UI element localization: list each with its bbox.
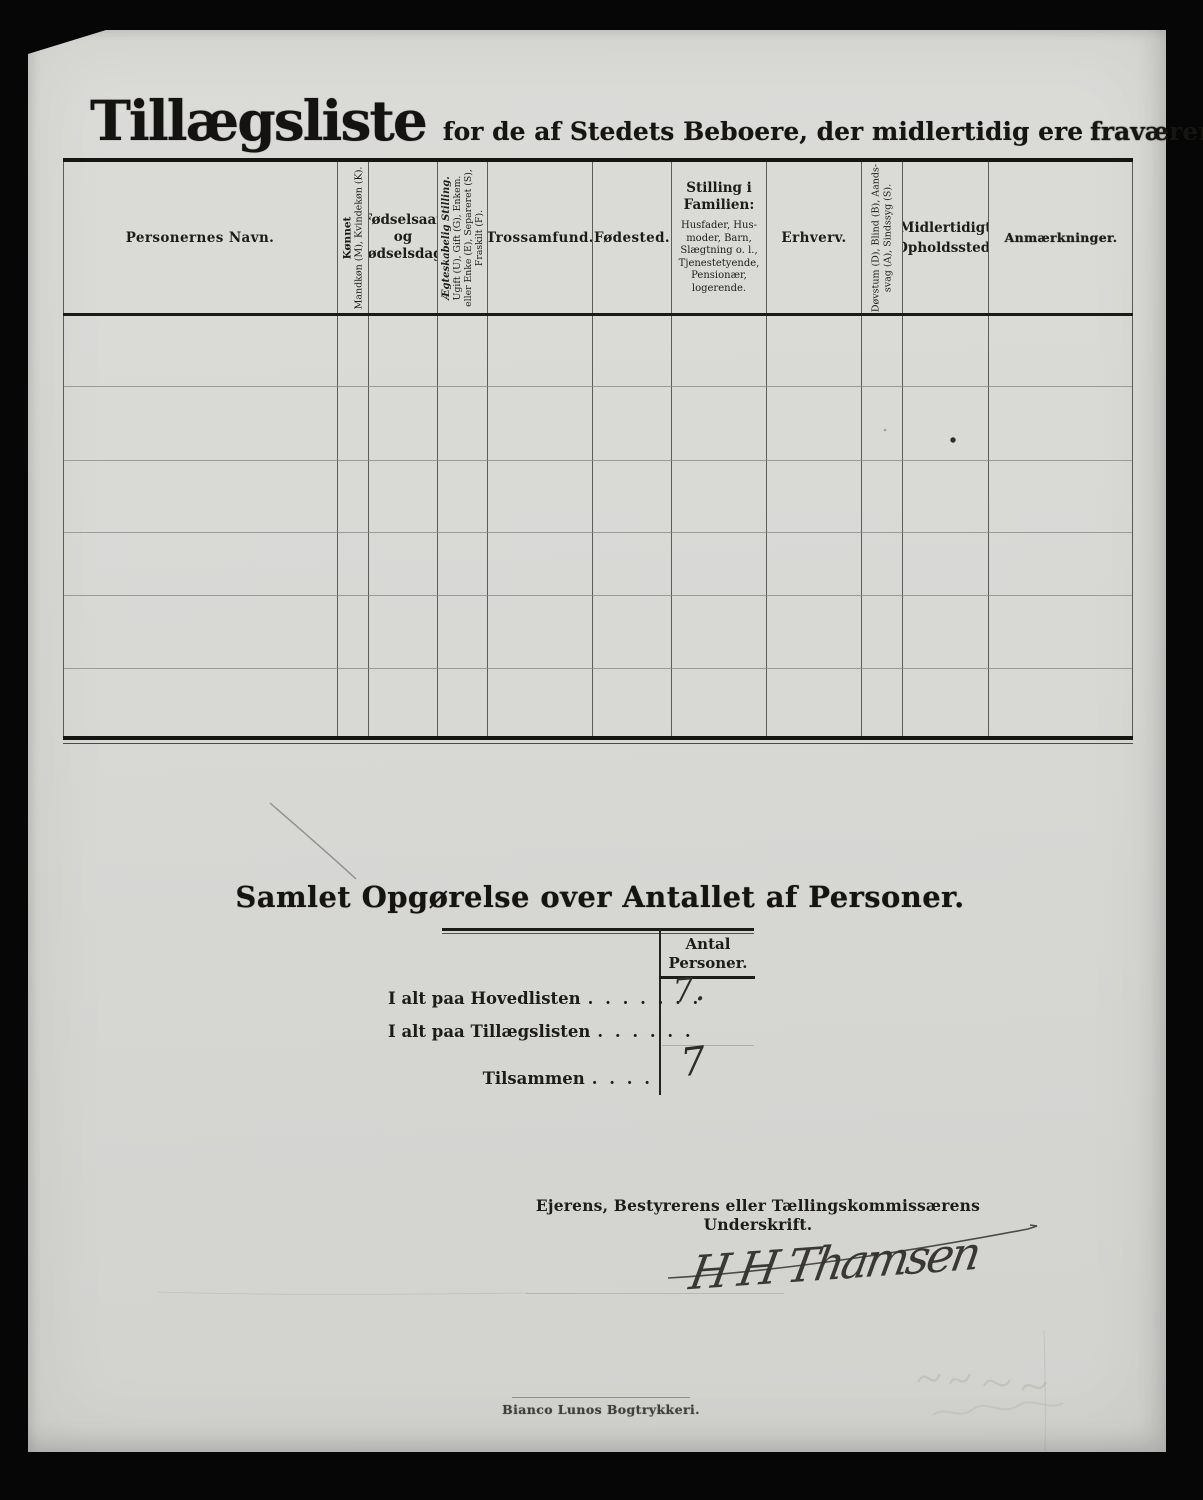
table-cell-r4-c6 xyxy=(592,532,671,595)
table-header-row: Personernes Navn. Kønnet Mandkøn (M), Kv… xyxy=(63,162,1133,316)
col-header-disability: Døvstum (D), Blind (B), Aands- svag (A),… xyxy=(861,162,902,313)
table-cell-r3-c3 xyxy=(368,460,437,532)
table-cell-r2-c4 xyxy=(437,386,487,460)
table-body xyxy=(63,316,1133,736)
signature-baseline xyxy=(526,1293,784,1294)
col-header-temporary-residence: Midlertidigt Opholdssted. xyxy=(902,162,988,313)
table-cell-r1-c2 xyxy=(337,316,368,386)
scanned-census-form: { "document": { "title": "Tillægsliste",… xyxy=(0,0,1203,1500)
table-cell-r1-c11 xyxy=(988,316,1133,386)
table-cell-r5-c4 xyxy=(437,595,487,668)
col-header-occupation: Erhverv. xyxy=(766,162,861,313)
handwritten-count-hovedlisten: 7. xyxy=(671,969,706,1011)
handwritten-count-tilsammen: 7 xyxy=(678,1039,708,1087)
table-cell-r5-c5 xyxy=(487,595,592,668)
table-cell-r3-c5 xyxy=(487,460,592,532)
table-bottom-rule xyxy=(63,736,1133,740)
table-cell-r6-c11 xyxy=(988,668,1133,736)
table-cell-r1-c4 xyxy=(437,316,487,386)
col-header-sex: Kønnet Mandkøn (M), Kvindekøn (K). xyxy=(337,162,368,313)
crease-line xyxy=(1044,1330,1045,1450)
table-cell-r1-c8 xyxy=(766,316,861,386)
corner-shadow xyxy=(28,30,106,54)
table-cell-r4-c7 xyxy=(671,532,766,595)
table-cell-r5-c2 xyxy=(337,595,368,668)
table-cell-r4-c2 xyxy=(337,532,368,595)
printer-rule xyxy=(512,1397,690,1398)
table-cell-r5-c10 xyxy=(902,595,988,668)
page-subtitle: for de af Stedets Beboere, der midlertid… xyxy=(443,117,1083,146)
pencil-ghost-marks xyxy=(918,1374,1046,1390)
table-cell-r4-c11 xyxy=(988,532,1133,595)
col-header-religion: Trossamfund. xyxy=(487,162,592,313)
table-cell-r5-c9 xyxy=(861,595,902,668)
col-header-birthplace: Fødested. xyxy=(592,162,671,313)
rotated-text: Døvstum (D), Blind (B), Aands- svag (A),… xyxy=(871,163,894,311)
table-cell-r1-c1 xyxy=(63,316,337,386)
table-cell-r4-c8 xyxy=(766,532,861,595)
table-cell-r6-c3 xyxy=(368,668,437,736)
table-left-edge xyxy=(63,316,64,736)
table-cell-r1-c7 xyxy=(671,316,766,386)
table-cell-r3-c7 xyxy=(671,460,766,532)
table-cell-r6-c8 xyxy=(766,668,861,736)
table-cell-r2-c2 xyxy=(337,386,368,460)
summary-top-rule-thin xyxy=(442,933,754,934)
summary-row-tilsammen: Tilsammen. . . . xyxy=(388,1069,653,1088)
table-cell-r3-c1 xyxy=(63,460,337,532)
paper-sheet: Tillægslistefor de af Stedets Beboere, d… xyxy=(28,30,1166,1452)
table-cell-r2-c6 xyxy=(592,386,671,460)
document-header: Tillægslistefor de af Stedets Beboere, d… xyxy=(90,88,1203,153)
table-cell-r1-c9 xyxy=(861,316,902,386)
col-header-birthdate: Fødselsaar og Fødselsdag. xyxy=(368,162,437,313)
scratch-mark xyxy=(270,803,356,879)
table-cell-r2-c5 xyxy=(487,386,592,460)
table-cell-r2-c11 xyxy=(988,386,1133,460)
table-cell-r4-c4 xyxy=(437,532,487,595)
rotated-text: Ægteskabelig Stilling. Ugift (U), Gift (… xyxy=(441,169,485,307)
table-cell-r6-c6 xyxy=(592,668,671,736)
table-cell-r5-c6 xyxy=(592,595,671,668)
table-cell-r4-c9 xyxy=(861,532,902,595)
handwritten-signature: H H Thamsen xyxy=(686,1226,983,1301)
col-header-family-position: Stilling i Familien: Husfader, Hus- mode… xyxy=(671,162,766,313)
table-cell-r3-c2 xyxy=(337,460,368,532)
table-cell-r1-c6 xyxy=(592,316,671,386)
table-cell-r4-c3 xyxy=(368,532,437,595)
table-cell-r4-c5 xyxy=(487,532,592,595)
table-cell-r6-c10 xyxy=(902,668,988,736)
table-cell-r1-c10 xyxy=(902,316,988,386)
table-cell-r6-c9 xyxy=(861,668,902,736)
table-cell-r3-c8 xyxy=(766,460,861,532)
family-position-detail: Husfader, Hus- moder, Barn, Slægtning o.… xyxy=(679,220,760,295)
col-header-marital-status: Ægteskabelig Stilling. Ugift (U), Gift (… xyxy=(437,162,487,313)
col-header-name: Personernes Navn. xyxy=(63,162,337,313)
table-cell-r4-c1 xyxy=(63,532,337,595)
table-cell-r6-c4 xyxy=(437,668,487,736)
table-cell-r2-c10 xyxy=(902,386,988,460)
table-cell-r3-c6 xyxy=(592,460,671,532)
faint-line xyxy=(158,1292,528,1294)
printer-mark: Bianco Lunos Bogtrykkeri. xyxy=(441,1402,761,1417)
summary-row-tillaegslisten: I alt paa Tillægslisten. . . . . . xyxy=(388,1022,653,1041)
summary-heading: Samlet Opgørelse over Antallet af Person… xyxy=(50,880,1150,914)
table-cell-r1-c5 xyxy=(487,316,592,386)
pencil-ghost-marks xyxy=(933,1402,1063,1415)
table-cell-r2-c7 xyxy=(671,386,766,460)
summary-faint-rule xyxy=(662,1045,754,1046)
summary-row-hovedlisten: I alt paa Hovedlisten. . . . . . . xyxy=(388,989,653,1008)
table-cell-r1-c3 xyxy=(368,316,437,386)
table-cell-r2-c8 xyxy=(766,386,861,460)
page-title: Tillægsliste xyxy=(90,88,426,153)
table-cell-r6-c7 xyxy=(671,668,766,736)
summary-top-rule xyxy=(442,928,754,931)
table-cell-r4-c10 xyxy=(902,532,988,595)
census-table: Personernes Navn. Kønnet Mandkøn (M), Kv… xyxy=(63,158,1133,744)
table-cell-r6-c1 xyxy=(63,668,337,736)
col-header-remarks: Anmærkninger. xyxy=(988,162,1133,313)
table-cell-r2-c1 xyxy=(63,386,337,460)
table-cell-r3-c11 xyxy=(988,460,1133,532)
page-subtitle-emphasis: fraværende. xyxy=(1090,117,1203,146)
table-cell-r5-c1 xyxy=(63,595,337,668)
table-right-edge xyxy=(1132,316,1133,736)
table-cell-r3-c4 xyxy=(437,460,487,532)
table-cell-r5-c7 xyxy=(671,595,766,668)
table-cell-r5-c11 xyxy=(988,595,1133,668)
table-cell-r2-c9 xyxy=(861,386,902,460)
table-cell-r3-c9 xyxy=(861,460,902,532)
table-cell-r5-c3 xyxy=(368,595,437,668)
table-cell-r5-c8 xyxy=(766,595,861,668)
summary-count-column-header: Antal Personer. xyxy=(661,935,755,973)
rotated-text: Kønnet Mandkøn (M), Kvindekøn (K). xyxy=(341,166,365,309)
table-bottom-thin-rule xyxy=(63,743,1133,744)
table-cell-r6-c2 xyxy=(337,668,368,736)
table-cell-r2-c3 xyxy=(368,386,437,460)
table-cell-r3-c10 xyxy=(902,460,988,532)
table-cell-r6-c5 xyxy=(487,668,592,736)
